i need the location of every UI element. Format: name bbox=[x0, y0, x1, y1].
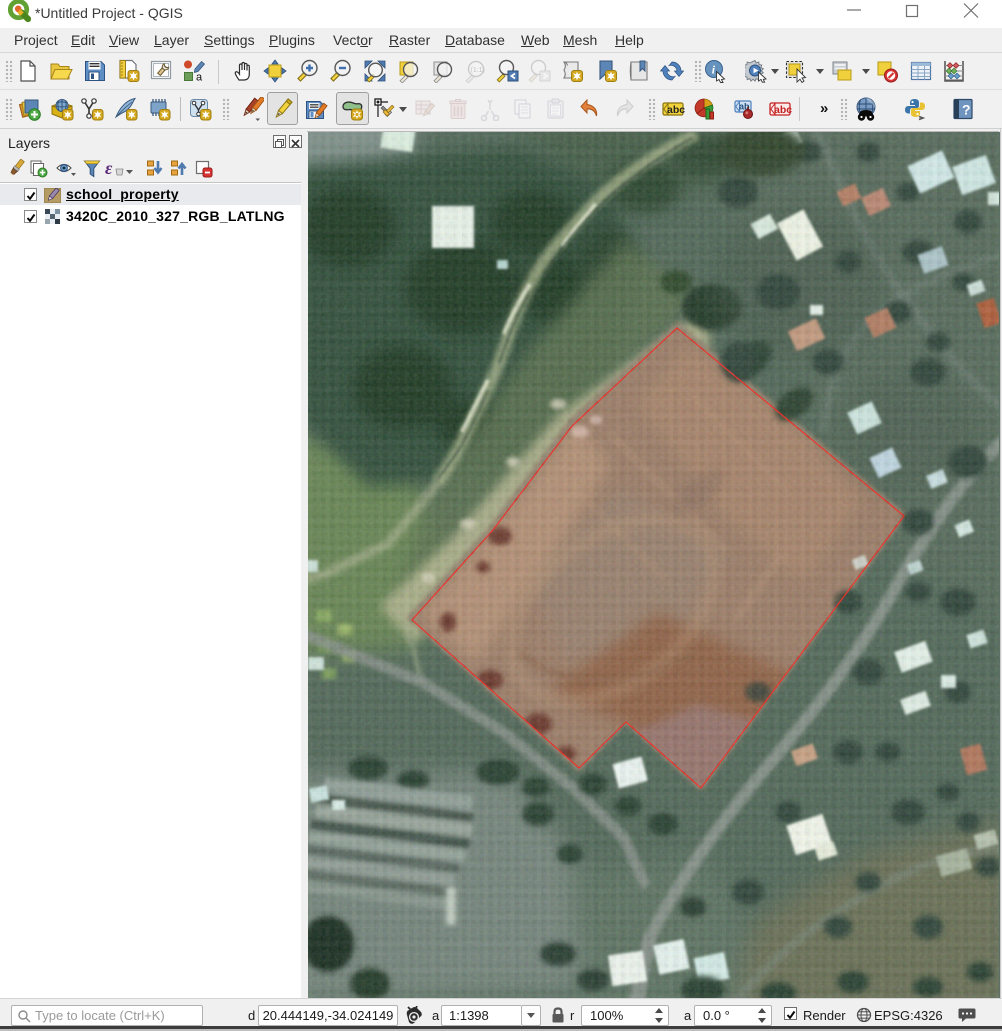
svg-text:?: ? bbox=[962, 102, 971, 118]
svg-text:(1:1): (1:1) bbox=[471, 67, 485, 74]
svg-text:a: a bbox=[196, 72, 203, 84]
svg-text:ε: ε bbox=[105, 158, 113, 178]
svg-text:abc: abc bbox=[667, 104, 685, 116]
svg-text:abc: abc bbox=[774, 104, 792, 116]
